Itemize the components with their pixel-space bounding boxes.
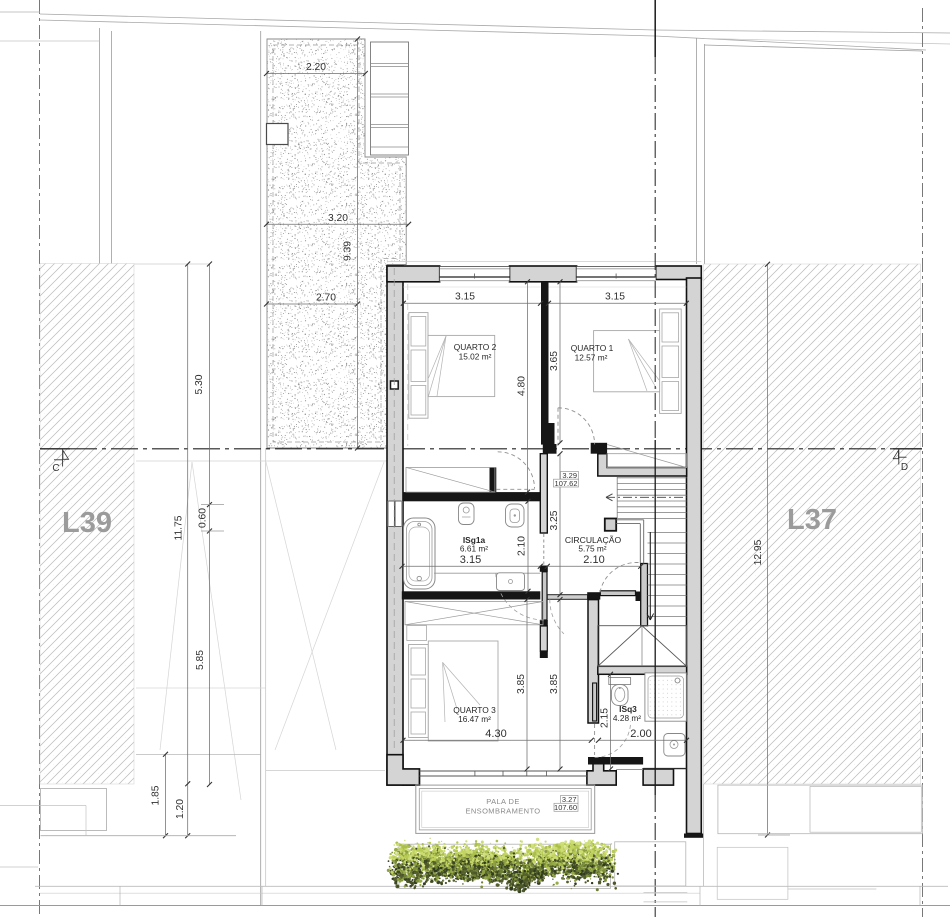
svg-text:2.70: 2.70 (316, 293, 336, 304)
svg-text:0.60: 0.60 (198, 508, 209, 528)
svg-text:5.75 m²: 5.75 m² (578, 544, 606, 554)
svg-text:107.60: 107.60 (554, 803, 577, 812)
svg-text:15.02 m²: 15.02 m² (459, 352, 492, 362)
svg-text:2.20: 2.20 (306, 62, 326, 73)
svg-text:9.39: 9.39 (343, 241, 354, 261)
svg-text:L39: L39 (62, 507, 112, 539)
svg-text:C: C (52, 463, 59, 474)
svg-text:5.30: 5.30 (194, 374, 205, 394)
svg-text:QUARTO 2: QUARTO 2 (454, 342, 497, 352)
svg-text:2.00: 2.00 (630, 728, 651, 740)
svg-text:12.57 m²: 12.57 m² (575, 353, 608, 363)
svg-text:3.85: 3.85 (516, 674, 527, 694)
svg-text:2.10: 2.10 (517, 536, 528, 556)
svg-text:4.80: 4.80 (517, 376, 528, 396)
svg-text:4.28 m²: 4.28 m² (613, 713, 641, 723)
svg-text:ENSOMBRAMENTO: ENSOMBRAMENTO (465, 807, 540, 816)
svg-text:PALA DE: PALA DE (486, 797, 520, 806)
svg-text:3.65: 3.65 (549, 351, 560, 371)
svg-text:4.30: 4.30 (485, 728, 506, 740)
svg-text:1.85: 1.85 (151, 785, 162, 805)
svg-text:2.10: 2.10 (583, 554, 604, 566)
svg-text:12.95: 12.95 (753, 539, 764, 565)
svg-text:5.85: 5.85 (195, 650, 206, 670)
svg-text:3.20: 3.20 (328, 213, 348, 224)
svg-text:L37: L37 (787, 504, 837, 536)
svg-text:107.62: 107.62 (555, 479, 578, 488)
svg-text:3.15: 3.15 (455, 292, 475, 303)
svg-text:11.75: 11.75 (174, 515, 185, 540)
svg-text:QUARTO 1: QUARTO 1 (571, 343, 614, 353)
svg-text:3.15: 3.15 (460, 554, 481, 566)
svg-text:3.25: 3.25 (549, 510, 560, 530)
svg-text:2.15: 2.15 (600, 708, 611, 728)
svg-text:3.85: 3.85 (549, 674, 560, 694)
svg-text:6.61 m²: 6.61 m² (460, 544, 488, 554)
svg-text:3.15: 3.15 (605, 292, 625, 303)
svg-text:D: D (901, 462, 908, 473)
svg-text:1.20: 1.20 (175, 799, 186, 819)
svg-text:16.47 m²: 16.47 m² (458, 714, 491, 724)
